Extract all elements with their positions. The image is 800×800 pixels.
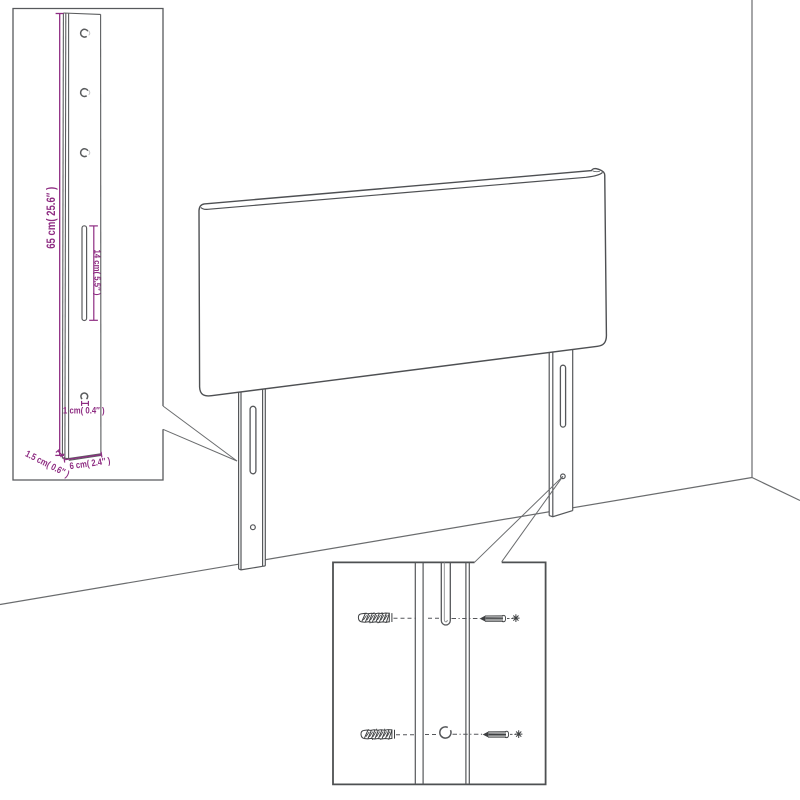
svg-text:65 cm( 25.6″ ): 65 cm( 25.6″ ) [44,187,58,249]
svg-text:14 cm( 5.5″ ): 14 cm( 5.5″ ) [92,250,102,296]
svg-text:1 cm( 0.4″ ): 1 cm( 0.4″ ) [63,406,105,416]
